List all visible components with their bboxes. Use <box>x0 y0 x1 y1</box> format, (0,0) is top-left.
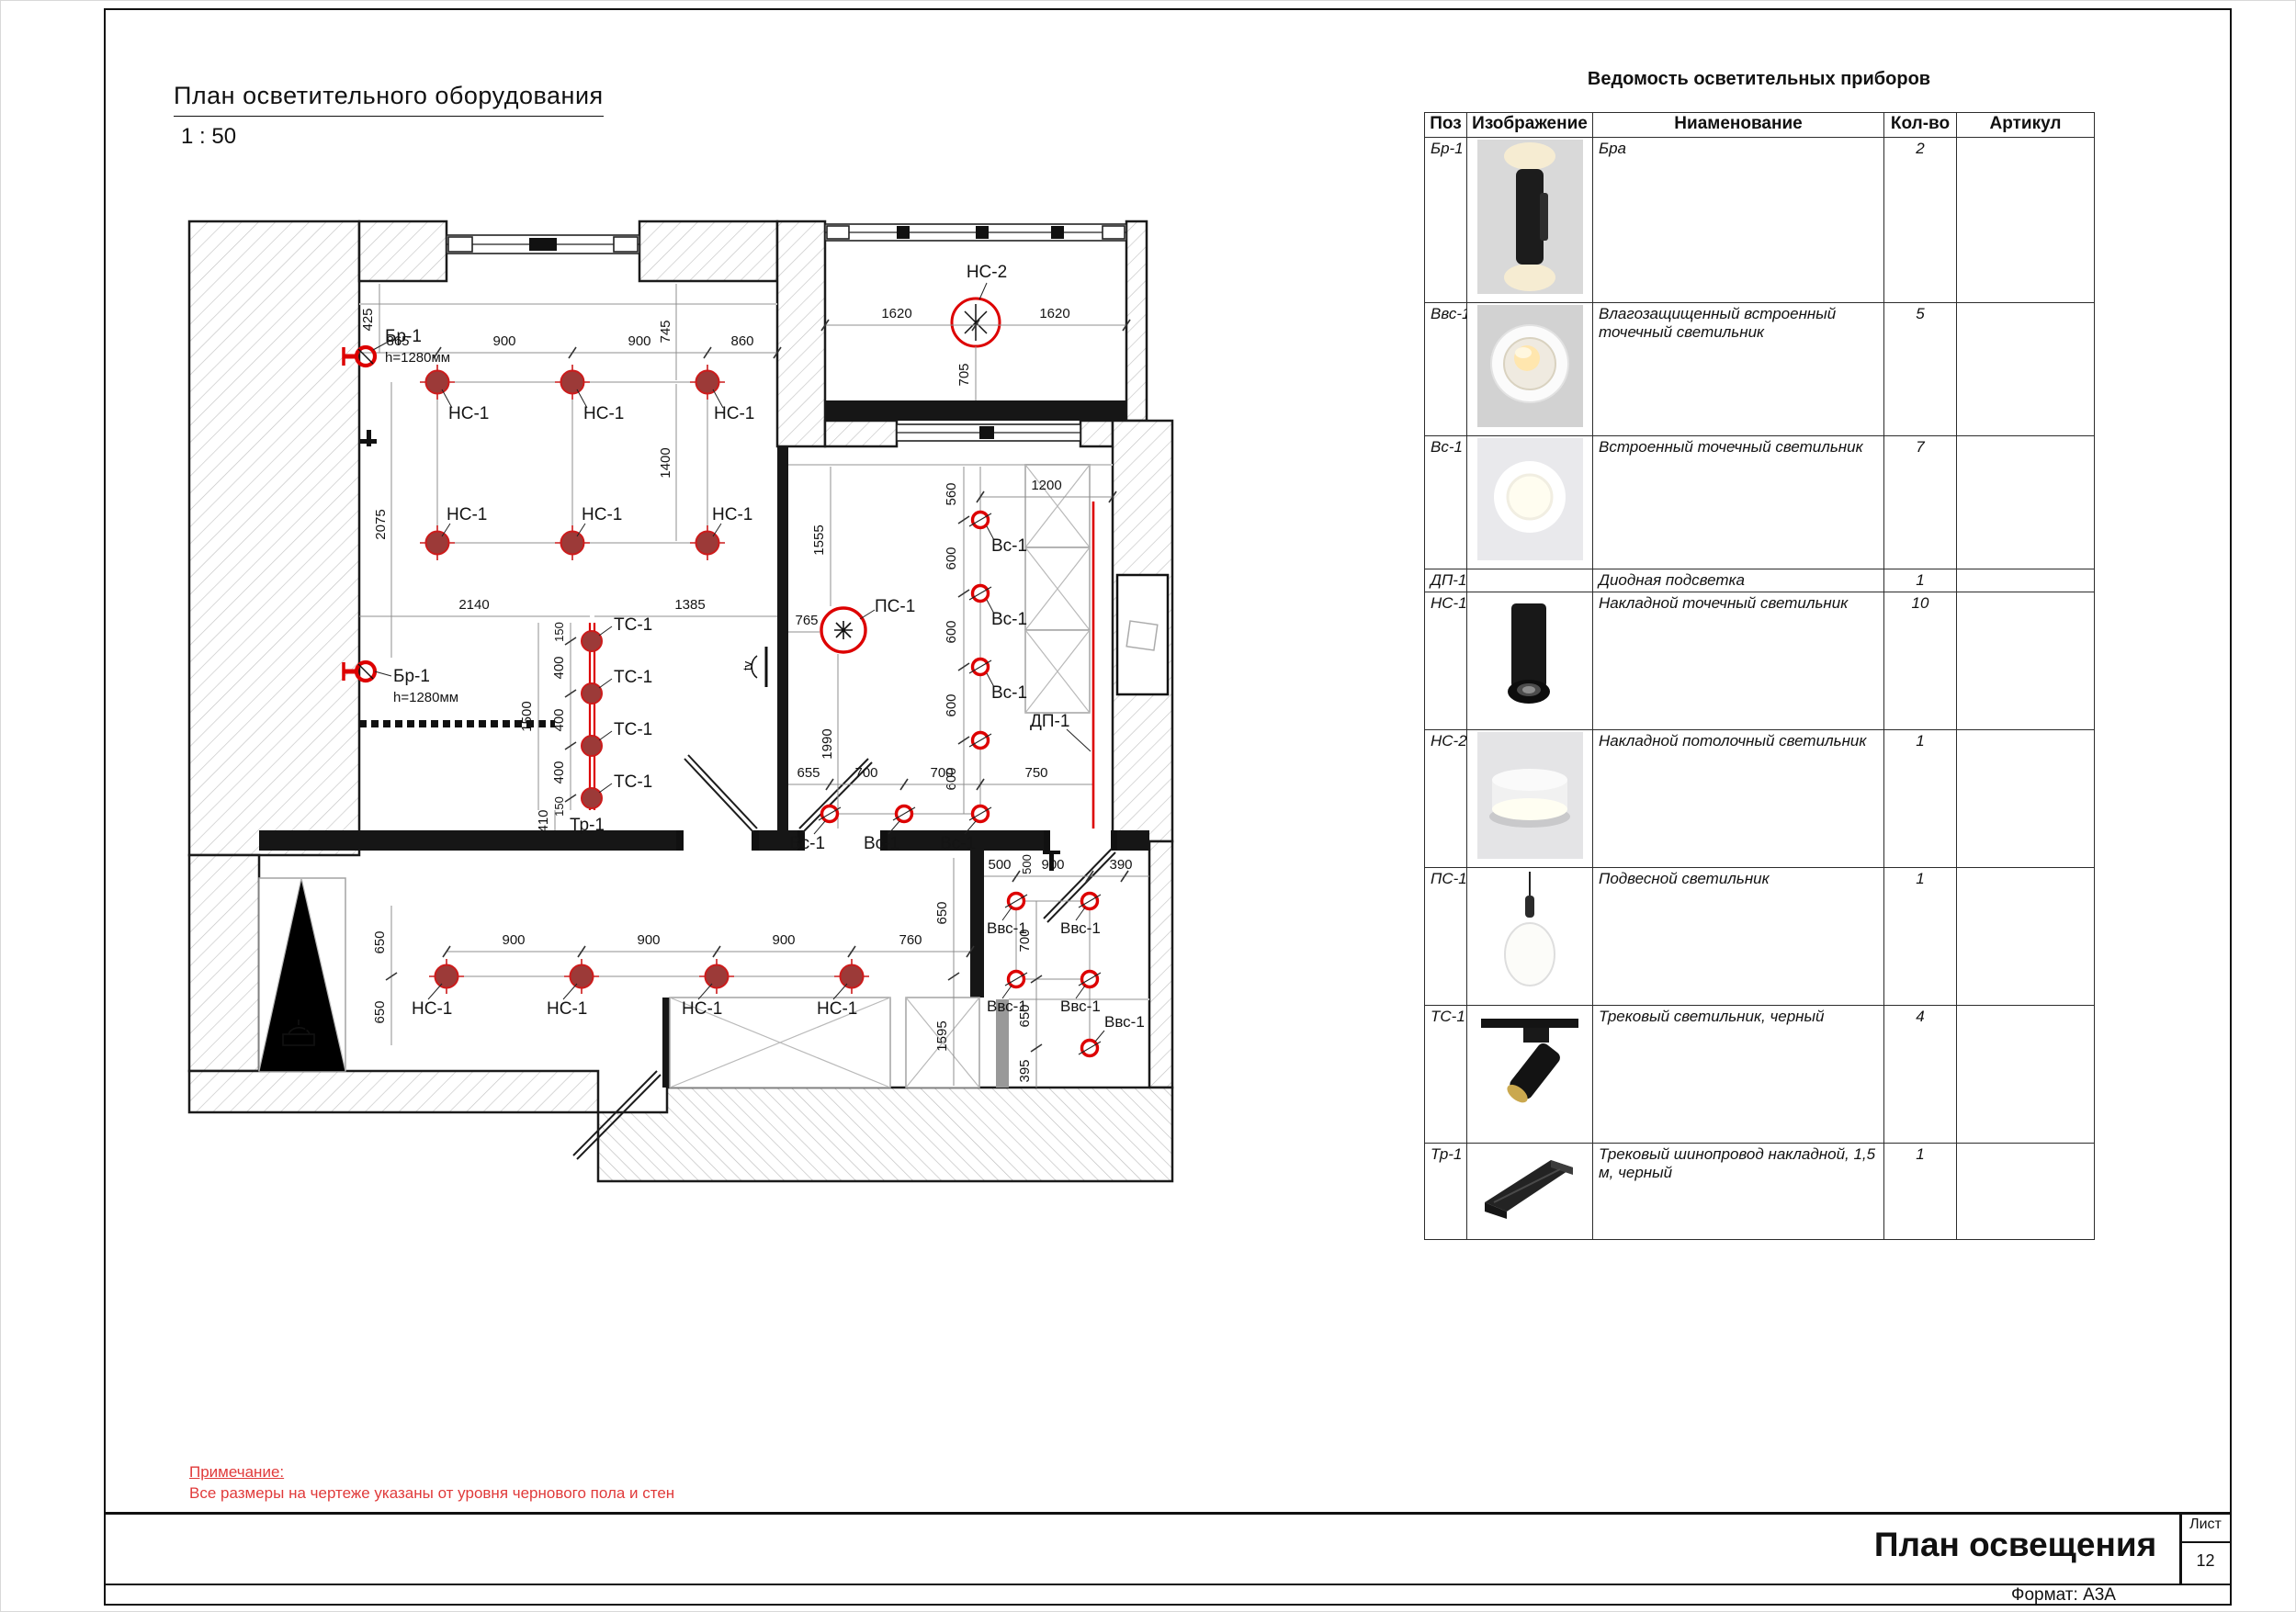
fixture-label: НС-1 <box>412 999 452 1019</box>
wall-socket <box>360 430 377 446</box>
vs1-fixture-icon <box>969 586 991 602</box>
dim-label: 900 <box>492 333 515 349</box>
vs1-fixture-icon <box>969 659 991 675</box>
row-qty: 1 <box>1884 569 1957 592</box>
ns1-fixture-icon <box>834 959 869 994</box>
dim-label: 700 <box>854 765 877 781</box>
row-name: Влагозащищенный встроенный точечный свет… <box>1593 303 1884 436</box>
titleblock-title: План освещения <box>1857 1526 2174 1564</box>
dim-label: 1620 <box>881 306 911 321</box>
drawing-sheet: План осветительного оборудования 1 : 50 <box>0 0 2296 1612</box>
fixtures-table: Поз Изображение Ниаменование Кол-во Арти… <box>1424 112 2095 1240</box>
dim-label: 390 <box>1109 857 1132 873</box>
dim-label: 650 <box>372 930 388 953</box>
row-name: Трековый светильник, черный <box>1593 1006 1884 1144</box>
fixture-label: НС-1 <box>714 404 754 423</box>
dim-label: 765 <box>795 613 818 628</box>
dim-label: 650 <box>1017 1004 1033 1027</box>
row-pos: ТС-1 <box>1425 1006 1467 1144</box>
vs1-fixture-icon <box>969 733 991 749</box>
vvs1-fixture-icon <box>1079 1041 1101 1056</box>
fixture-label: ТС-1 <box>614 615 652 635</box>
dim-label: 400 <box>551 656 567 679</box>
dim-label: 700 <box>1017 929 1033 952</box>
ns1-fixture-icon <box>699 959 734 994</box>
fixture-label: Вс-1 <box>991 610 1027 629</box>
ns1-fixture-icon <box>555 365 590 400</box>
svg-text:tv: tv <box>741 660 754 671</box>
vs1-fixture-icon <box>893 806 915 822</box>
fixture-label: Вс-1 <box>991 683 1027 703</box>
row-name: Подвесной светильник <box>1593 868 1884 1006</box>
table-row: Тр-1 Трековый шинопровод накладной, 1,5 … <box>1425 1144 2095 1240</box>
titleblock-divider <box>2179 1541 2232 1543</box>
ns1-fixture-icon <box>690 525 725 560</box>
row-name: Бра <box>1593 138 1884 303</box>
fixture-label: Ввс-1 <box>1060 919 1101 937</box>
room-balcony: НС-2 1620 1620 705 <box>821 263 1130 400</box>
fixture-image-ns1 <box>1467 592 1593 730</box>
table-header-row: Поз Изображение Ниаменование Кол-во Арти… <box>1425 113 2095 138</box>
dim-label: 1400 <box>658 447 673 478</box>
fixture-label: НС-1 <box>583 404 624 423</box>
ps1-fixture-icon <box>821 608 865 652</box>
table-title: Ведомость осветительных приборов <box>1424 69 2094 90</box>
dim-label: 650 <box>372 1000 388 1023</box>
closet-hall-left <box>259 878 345 1071</box>
dim-label: 745 <box>658 320 673 343</box>
dim-label: 500 <box>988 857 1011 873</box>
fixture-image-ts1 <box>1467 1006 1593 1144</box>
fixtures-table-wrap: Поз Изображение Ниаменование Кол-во Арти… <box>1424 112 2094 1240</box>
fixture-label: ТС-1 <box>614 720 652 739</box>
row-article <box>1957 730 2095 868</box>
row-qty: 10 <box>1884 592 1957 730</box>
ts1-fixture-icon <box>582 788 602 808</box>
row-name: Накладной потолочный светильник <box>1593 730 1884 868</box>
row-article <box>1957 138 2095 303</box>
dim-label: 705 <box>956 363 972 386</box>
vvs1-fixture-icon <box>1005 894 1027 909</box>
titleblock-top-line <box>104 1512 2232 1515</box>
vvs1-fixture-icon <box>1005 972 1027 987</box>
dim-label: 750 <box>1024 765 1047 781</box>
dim-label: 2140 <box>458 597 489 613</box>
ts1-fixture-icon <box>582 631 602 651</box>
row-article <box>1957 303 2095 436</box>
svg-text:F: F <box>304 1019 312 1034</box>
dim-label: 1500 <box>519 701 535 731</box>
fixture-label: НС-1 <box>582 505 622 524</box>
dim-label: 1385 <box>674 597 705 613</box>
sheet-label: Лист <box>2179 1516 2232 1533</box>
format-label: Формат: А3А <box>1958 1585 2169 1606</box>
fixture-sublabel: h=1280мм <box>393 690 458 705</box>
row-qty: 1 <box>1884 730 1957 868</box>
row-article <box>1957 1144 2095 1240</box>
dim-label: 425 <box>360 308 376 331</box>
dim-label: 760 <box>899 932 922 948</box>
dim-label: 900 <box>637 932 660 948</box>
fixture-label: Тр-1 <box>570 816 605 835</box>
dim-label: 655 <box>797 765 820 781</box>
row-name: Накладной точечный светильник <box>1593 592 1884 730</box>
dim-label: 400 <box>551 708 567 731</box>
fixture-label: Бр-1 <box>393 667 430 686</box>
dim-label: 1595 <box>934 1020 950 1051</box>
fixture-label: НС-1 <box>712 505 752 524</box>
fixture-label: НС-1 <box>448 404 489 423</box>
fixture-label: НС-1 <box>817 999 857 1019</box>
dim-label: 1990 <box>820 728 835 759</box>
fixture-label: ДП-1 <box>1030 712 1069 731</box>
col-header-image: Изображение <box>1467 113 1593 138</box>
row-article <box>1957 1006 2095 1144</box>
dim-label: 1555 <box>811 524 827 555</box>
fixture-label: ПС-1 <box>875 597 915 616</box>
row-name: Трековый шинопровод накладной, 1,5 м, че… <box>1593 1144 1884 1240</box>
ns2-fixture-icon <box>952 299 1000 346</box>
fixture-label: Ввс-1 <box>1060 998 1101 1015</box>
row-qty: 5 <box>1884 303 1957 436</box>
ns1-fixture-icon <box>420 365 455 400</box>
fixture-label: Вс-1 <box>864 834 899 853</box>
col-header-name: Ниаменование <box>1593 113 1884 138</box>
row-qty: 4 <box>1884 1006 1957 1144</box>
row-article <box>1957 592 2095 730</box>
dim-label: 600 <box>944 620 959 643</box>
table-row: НС-2 Накладной потолочный светильник 1 <box>1425 730 2095 868</box>
row-qty: 1 <box>1884 1144 1957 1240</box>
col-header-qty: Кол-во <box>1884 113 1957 138</box>
fixture-image-ns2 <box>1467 730 1593 868</box>
dim-label: 2075 <box>373 509 389 539</box>
row-name: Встроенный точечный светильник <box>1593 436 1884 569</box>
floor-plan: 865 900 900 860 425 2075 745 1400 <box>162 116 1227 1200</box>
dim-label: 700 <box>930 765 953 781</box>
dim-label: 650 <box>934 901 950 924</box>
fixture-image-vvs1 <box>1467 303 1593 436</box>
row-pos: Бр-1 <box>1425 138 1467 303</box>
door-living <box>684 755 757 832</box>
row-pos: ДП-1 <box>1425 569 1467 592</box>
fixture-image-tr1 <box>1467 1144 1593 1240</box>
fixture-image-br1 <box>1467 138 1593 303</box>
dim-label: 560 <box>944 482 959 505</box>
dim-label: 900 <box>628 333 650 349</box>
fixture-sublabel: h=1280мм <box>385 350 450 366</box>
fixture-image-vs1 <box>1467 436 1593 569</box>
ns1-fixture-icon <box>564 959 599 994</box>
vs1-fixture-icon <box>819 806 841 822</box>
row-name: Диодная подсветка <box>1593 569 1884 592</box>
vvs1-fixture-icon <box>1079 972 1101 987</box>
table-row: ДП-1 Диодная подсветка 1 <box>1425 569 2095 592</box>
table-row: ПС-1 Подвесной светильник 1 <box>1425 868 2095 1006</box>
table-row: Вс-1 Встроенный точечный светильник 7 <box>1425 436 2095 569</box>
fixture-image-dp1 <box>1467 569 1593 592</box>
row-pos: ПС-1 <box>1425 868 1467 1006</box>
dim-label: 150 <box>552 796 566 817</box>
fixture-label: НС-1 <box>447 505 487 524</box>
dim-label: 410 <box>536 809 551 832</box>
dim-label: 900 <box>502 932 525 948</box>
table-row: ТС-1 Трековый светильник, черный 4 <box>1425 1006 2095 1144</box>
fixture-label: Бр-1 <box>385 327 422 346</box>
window-living <box>447 235 639 254</box>
dim-label: 500 <box>1020 854 1034 874</box>
row-qty: 7 <box>1884 436 1957 569</box>
dim-label: 150 <box>552 622 566 642</box>
niche-utility <box>1117 575 1168 694</box>
dim-label: 395 <box>1017 1059 1033 1082</box>
dim-label: 600 <box>944 693 959 716</box>
titleblock-bottom-line <box>104 1584 2232 1585</box>
row-article <box>1957 569 2095 592</box>
ns1-fixture-icon <box>555 525 590 560</box>
fixture-label: Вс-1 <box>940 834 976 853</box>
ns1-fixture-icon <box>420 525 455 560</box>
fixture-label: Вс-1 <box>991 536 1027 556</box>
row-pos: НС-2 <box>1425 730 1467 868</box>
wardrobe-bedroom <box>1025 465 1090 713</box>
window-balcony <box>825 224 1126 241</box>
dim-label: 400 <box>551 761 567 783</box>
dim-label: 1620 <box>1039 306 1069 321</box>
row-pos: Ввс-1 <box>1425 303 1467 436</box>
ts1-fixture-icon <box>582 736 602 756</box>
dim-label: 1200 <box>1031 478 1061 493</box>
dim-label: 600 <box>944 547 959 569</box>
col-header-pos: Поз <box>1425 113 1467 138</box>
col-header-article: Артикул <box>1957 113 2095 138</box>
ts1-fixture-icon <box>582 683 602 704</box>
row-qty: 2 <box>1884 138 1957 303</box>
table-row: Бр-1 Бра 2 <box>1425 138 2095 303</box>
fixture-label: Вс-1 <box>789 834 825 853</box>
fixture-label: НС-1 <box>547 999 587 1019</box>
vs1-fixture-icon <box>969 806 991 822</box>
row-pos: Вс-1 <box>1425 436 1467 569</box>
row-qty: 1 <box>1884 868 1957 1006</box>
sheet-number: 12 <box>2179 1551 2232 1571</box>
vs1-fixture-icon <box>969 513 991 528</box>
table-row: НС-1 Накладной точечный светильник 10 <box>1425 592 2095 730</box>
dim-label: 860 <box>730 333 753 349</box>
fixture-label: Ввс-1 <box>1104 1013 1145 1031</box>
note-text: Все размеры на чертеже указаны от уровня… <box>189 1484 674 1503</box>
page-title: План осветительного оборудования <box>174 82 604 117</box>
note-title: Примечание: <box>189 1463 284 1482</box>
tv-icon: tv <box>741 647 766 687</box>
fixture-label: НС-2 <box>967 263 1007 282</box>
vvs1-fixture-icon <box>1079 894 1101 909</box>
fixture-label: ТС-1 <box>614 772 652 792</box>
table-row: Ввс-1 Влагозащищенный встроенный точечны… <box>1425 303 2095 436</box>
fixture-label: ТС-1 <box>614 668 652 687</box>
fixture-image-ps1 <box>1467 868 1593 1006</box>
row-pos: НС-1 <box>1425 592 1467 730</box>
ns1-fixture-icon <box>429 959 464 994</box>
room-living: 865 900 900 860 425 2075 745 1400 <box>344 284 781 835</box>
window-bedroom <box>897 424 1080 441</box>
fixture-label: НС-1 <box>682 999 722 1019</box>
row-article <box>1957 868 2095 1006</box>
ns1-fixture-icon <box>690 365 725 400</box>
row-article <box>1957 436 2095 569</box>
row-pos: Тр-1 <box>1425 1144 1467 1240</box>
dim-label: 900 <box>772 932 795 948</box>
